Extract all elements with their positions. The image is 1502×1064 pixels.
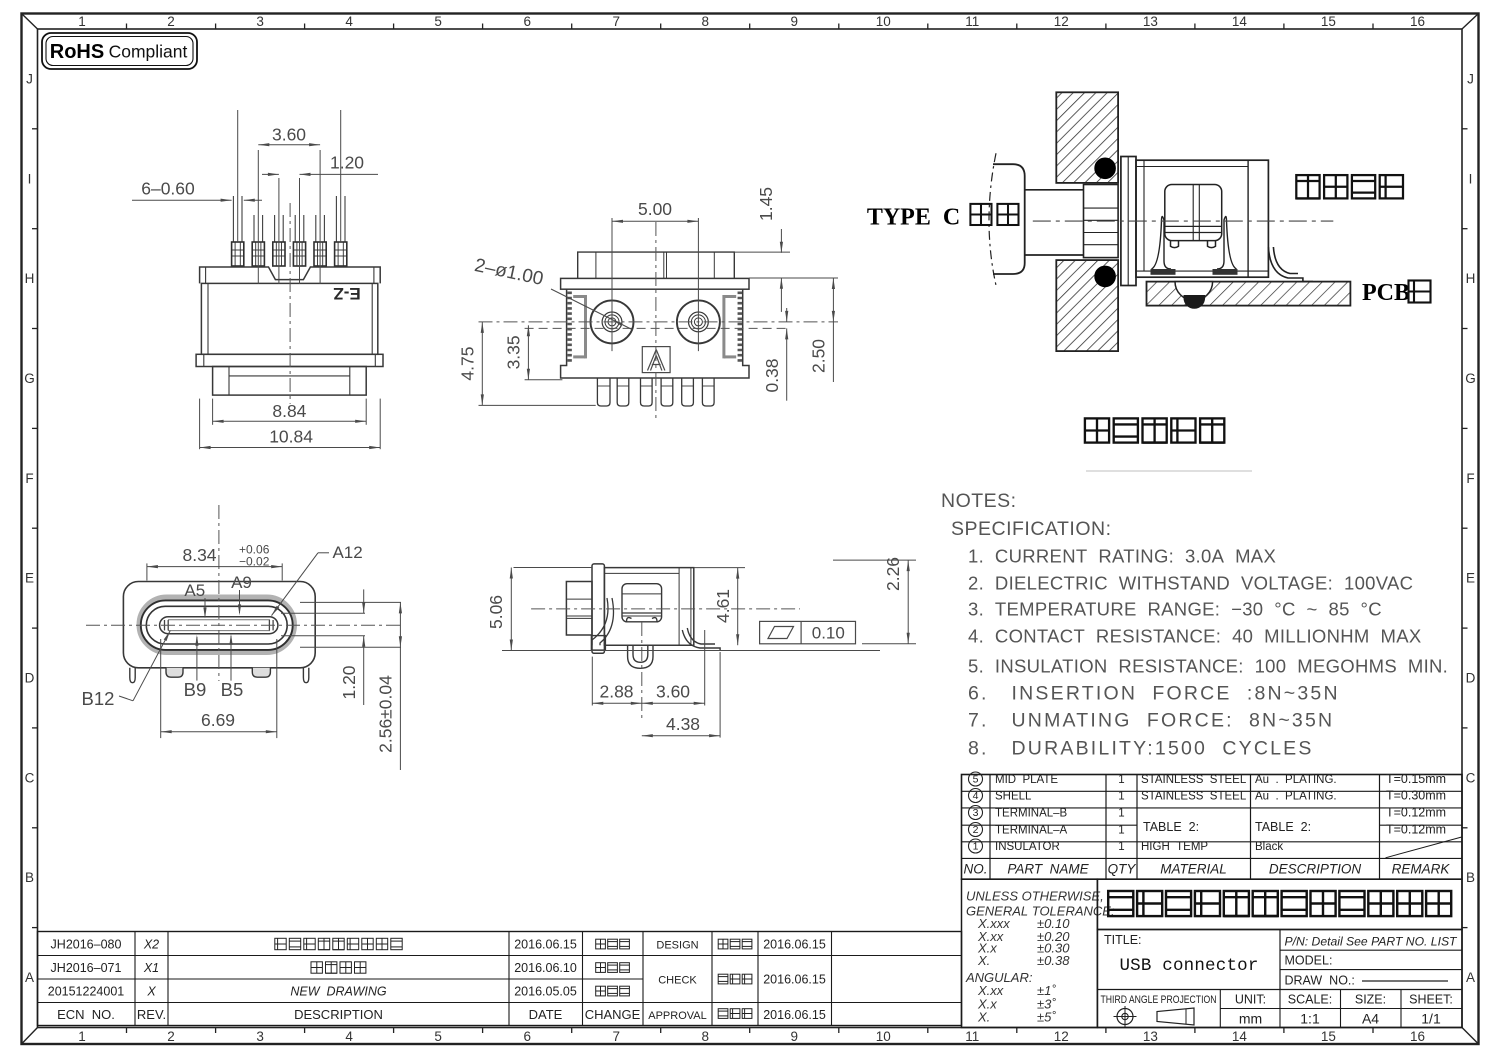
svg-text:PCB: PCB [1362, 280, 1410, 306]
svg-text:T=0.30mm: T=0.30mm [1386, 789, 1446, 803]
svg-text:5.06: 5.06 [486, 595, 506, 629]
svg-text:B: B [1466, 870, 1475, 885]
svg-text:5.00: 5.00 [638, 199, 672, 219]
svg-text:1: 1 [1118, 791, 1124, 803]
svg-text:UNLESS OTHERWISE,: UNLESS OTHERWISE, [966, 889, 1104, 904]
svg-text:A12: A12 [332, 543, 362, 562]
svg-text:A9: A9 [231, 573, 252, 592]
svg-text:5: 5 [434, 1029, 442, 1044]
svg-text:mm: mm [1239, 1011, 1262, 1027]
svg-text:B5: B5 [221, 679, 244, 700]
svg-text:−0.02: −0.02 [239, 555, 270, 569]
svg-text:X2: X2 [143, 938, 159, 952]
svg-text:3.35: 3.35 [504, 335, 524, 369]
svg-text:JH2016–080: JH2016–080 [51, 938, 122, 952]
svg-text:A5: A5 [184, 581, 205, 600]
svg-text:4. CONTACT RESISTANCE: 40: 4. CONTACT RESISTANCE: 40 MILLIONHM MAX [968, 626, 1422, 647]
svg-text:2016.05.05: 2016.05.05 [514, 985, 577, 999]
svg-text:I: I [28, 171, 32, 186]
svg-text:QTY: QTY [1108, 862, 1137, 877]
svg-text:1: 1 [78, 14, 86, 29]
svg-text:9: 9 [791, 1029, 799, 1044]
svg-text:6: 6 [523, 14, 531, 29]
svg-text:2.50: 2.50 [809, 339, 829, 373]
svg-text:A4: A4 [1362, 1011, 1379, 1027]
svg-text:E-Z: E-Z [333, 284, 360, 303]
svg-text:0.38: 0.38 [762, 358, 782, 392]
svg-text:STAINLESS STEEL: STAINLESS STEEL [1141, 774, 1247, 786]
svg-text:1: 1 [973, 841, 979, 853]
svg-text:1: 1 [1118, 825, 1124, 837]
svg-text:14: 14 [1232, 14, 1248, 29]
svg-text:T=0.12mm: T=0.12mm [1386, 806, 1446, 820]
svg-text:SIZE:: SIZE: [1355, 993, 1386, 1007]
svg-text:6.69: 6.69 [201, 710, 235, 730]
svg-text:Au . PLATING.: Au . PLATING. [1255, 791, 1337, 803]
svg-text:2016.06.15: 2016.06.15 [514, 938, 577, 952]
svg-text:6. INSERTION FORCE :8N~35N: 6. INSERTION FORCE :8N~35N [968, 683, 1340, 705]
svg-text:G: G [24, 371, 35, 386]
svg-text:3: 3 [973, 807, 979, 819]
svg-text:PART NAME: PART NAME [1007, 862, 1089, 877]
svg-text:A: A [25, 970, 34, 985]
svg-text:1.20: 1.20 [339, 665, 359, 699]
svg-text:TERMINAL–A: TERMINAL–A [995, 825, 1068, 837]
svg-text:±5˚: ±5˚ [1037, 1010, 1056, 1025]
svg-text:TERMINAL–B: TERMINAL–B [995, 808, 1068, 820]
svg-text:B: B [25, 870, 34, 885]
svg-text:10: 10 [876, 1029, 891, 1044]
svg-text:X1: X1 [143, 961, 159, 975]
svg-text:G: G [1465, 371, 1476, 386]
svg-text:HIGH TEMP: HIGH TEMP [1141, 841, 1208, 853]
svg-text:4.75: 4.75 [458, 347, 478, 381]
svg-text:13: 13 [1143, 1029, 1158, 1044]
svg-text:B12: B12 [82, 688, 115, 709]
svg-text:APPROVAL: APPROVAL [648, 1010, 707, 1022]
svg-text:1.20: 1.20 [330, 153, 364, 173]
svg-text:1:1: 1:1 [1300, 1011, 1320, 1027]
svg-text:12: 12 [1054, 14, 1069, 29]
svg-text:11: 11 [965, 1029, 979, 1044]
svg-text:T=0.15mm: T=0.15mm [1386, 772, 1446, 786]
svg-text:ECN NO.: ECN NO. [57, 1007, 115, 1022]
svg-text:8.34: 8.34 [182, 545, 216, 565]
svg-text:T=0.12mm: T=0.12mm [1386, 823, 1446, 837]
svg-text:2: 2 [167, 1029, 175, 1044]
svg-text:SPECIFICATION:: SPECIFICATION: [951, 518, 1112, 540]
svg-text:1: 1 [1118, 774, 1124, 786]
svg-text:Compliant: Compliant [109, 42, 188, 62]
svg-text:5: 5 [434, 14, 442, 29]
svg-text:C: C [1466, 770, 1476, 785]
svg-text:DESCRIPTION: DESCRIPTION [1269, 862, 1362, 877]
svg-text:P/N: Detail See PART NO. LIST: P/N: Detail See PART NO. LIST [1285, 935, 1458, 949]
svg-text:4: 4 [973, 790, 979, 802]
svg-text:8.84: 8.84 [272, 401, 306, 421]
svg-text:4: 4 [345, 1029, 353, 1044]
svg-text:1. CURRENT RATING: 3.0A MA: 1. CURRENT RATING: 3.0A MAX [968, 546, 1276, 567]
svg-text:SCALE:: SCALE: [1288, 993, 1332, 1007]
svg-text:UNIT:: UNIT: [1235, 993, 1266, 1007]
svg-text:10.84: 10.84 [269, 426, 313, 446]
svg-text:5: 5 [973, 774, 979, 786]
svg-text:20151224001: 20151224001 [48, 985, 125, 999]
svg-text:TITLE:: TITLE: [1104, 933, 1142, 947]
svg-text:E: E [25, 571, 34, 586]
svg-text:J: J [1467, 71, 1474, 86]
svg-text:SHELL: SHELL [995, 791, 1032, 803]
svg-text:DATE: DATE [529, 1007, 563, 1022]
svg-text:2.26: 2.26 [883, 557, 903, 591]
svg-text:16: 16 [1410, 1029, 1425, 1044]
svg-text:2016.06.15: 2016.06.15 [763, 973, 826, 987]
svg-text:D: D [25, 671, 35, 686]
svg-text:THIRD ANGLE PROJECTION: THIRD ANGLE PROJECTION [1101, 994, 1217, 1006]
svg-text:8: 8 [701, 14, 709, 29]
svg-text:INSULATOR: INSULATOR [995, 841, 1060, 853]
svg-text:7. UNMATING FORCE: 8N~35N: 7. UNMATING FORCE: 8N~35N [968, 710, 1334, 732]
svg-text:MATERIAL: MATERIAL [1160, 862, 1227, 877]
svg-text:7: 7 [612, 14, 620, 29]
svg-text:4: 4 [345, 14, 353, 29]
svg-text:0.10: 0.10 [812, 624, 845, 643]
svg-text:12: 12 [1054, 1029, 1069, 1044]
svg-text:D: D [1466, 671, 1476, 686]
svg-text:B9: B9 [184, 679, 207, 700]
svg-text:2. DIELECTRIC WITHSTAND VOL: 2. DIELECTRIC WITHSTAND VOLTAGE: 100VAC [968, 573, 1413, 594]
svg-text:NEW DRAWING: NEW DRAWING [290, 985, 387, 999]
svg-text:CHANGE: CHANGE [585, 1007, 641, 1022]
svg-text:Black: Black [1255, 841, 1283, 853]
svg-text:C: C [25, 770, 35, 785]
svg-text:1.45: 1.45 [756, 187, 776, 221]
svg-text:H: H [1466, 271, 1476, 286]
svg-text:REMARK: REMARK [1392, 862, 1451, 877]
svg-text:7: 7 [612, 1029, 620, 1044]
svg-text:3. TEMPERATURE RANGE: −30: 3. TEMPERATURE RANGE: −30 °C ~ 85 °C [968, 599, 1382, 620]
svg-text:X.: X. [977, 953, 990, 968]
svg-text:13: 13 [1143, 14, 1158, 29]
svg-text:CHECK: CHECK [658, 975, 697, 987]
svg-text:5. INSULATION RESISTANCE: 1: 5. INSULATION RESISTANCE: 100 MEGOHMS MI… [968, 656, 1448, 677]
svg-text:1: 1 [1118, 808, 1124, 820]
svg-text:11: 11 [965, 14, 979, 29]
svg-text:E: E [1466, 571, 1475, 586]
svg-text:JH2016–071: JH2016–071 [51, 961, 122, 975]
svg-text:4.38: 4.38 [666, 714, 700, 734]
svg-text:TABLE 2:: TABLE 2: [1255, 820, 1311, 834]
svg-text:I: I [1469, 171, 1473, 186]
svg-text:DESCRIPTION: DESCRIPTION [294, 1007, 383, 1022]
svg-text:8: 8 [701, 1029, 709, 1044]
svg-text:NOTES:: NOTES: [941, 490, 1017, 512]
svg-text:14: 14 [1232, 1029, 1248, 1044]
svg-text:X.: X. [977, 1010, 990, 1025]
svg-text:Au . PLATING.: Au . PLATING. [1255, 774, 1337, 786]
svg-text:2.56±0.04: 2.56±0.04 [376, 675, 396, 753]
svg-text:1/1: 1/1 [1421, 1011, 1441, 1027]
svg-text:A: A [1466, 970, 1475, 985]
svg-text:1: 1 [1118, 841, 1124, 853]
svg-text:RoHS: RoHS [50, 41, 104, 63]
svg-text:2016.06.15: 2016.06.15 [763, 1008, 826, 1022]
svg-text:2.88: 2.88 [599, 682, 633, 702]
svg-text:2016.06.10: 2016.06.10 [514, 961, 577, 975]
svg-text:DESIGN: DESIGN [656, 940, 698, 952]
svg-text:STAINLESS STEEL: STAINLESS STEEL [1141, 791, 1247, 803]
svg-text:2: 2 [167, 14, 175, 29]
svg-text:2016.06.15: 2016.06.15 [763, 938, 826, 952]
svg-text:6: 6 [523, 1029, 531, 1044]
svg-text:±0.38: ±0.38 [1037, 953, 1070, 968]
svg-text:H: H [25, 271, 35, 286]
svg-text:DRAW NO.:: DRAW NO.: [1285, 974, 1355, 988]
svg-text:10: 10 [876, 14, 891, 29]
svg-text:3.60: 3.60 [656, 682, 690, 702]
svg-text:15: 15 [1321, 1029, 1336, 1044]
svg-text:SHEET:: SHEET: [1409, 993, 1453, 1007]
svg-text:4.61: 4.61 [713, 589, 733, 623]
svg-text:9: 9 [791, 14, 799, 29]
svg-text:TYPE C: TYPE C [867, 205, 960, 231]
svg-text:8. DURABILITY:1500 CYCLES: 8. DURABILITY:1500 CYCLES [968, 738, 1314, 760]
svg-text:3.60: 3.60 [272, 125, 306, 145]
svg-text:F: F [1466, 471, 1474, 486]
svg-text:J: J [26, 71, 33, 86]
svg-text:1: 1 [78, 1029, 86, 1044]
svg-text:X: X [146, 985, 156, 999]
svg-text:USB connector: USB connector [1119, 956, 1258, 976]
svg-text:3: 3 [256, 1029, 264, 1044]
svg-text:TABLE 2:: TABLE 2: [1143, 820, 1199, 834]
svg-text:6–0.60: 6–0.60 [141, 179, 195, 199]
svg-text:16: 16 [1410, 14, 1425, 29]
svg-text:3: 3 [256, 14, 264, 29]
svg-text:MID PLATE: MID PLATE [995, 774, 1058, 786]
svg-text:15: 15 [1321, 14, 1336, 29]
svg-text:F: F [25, 471, 33, 486]
svg-text:2: 2 [973, 824, 979, 836]
svg-text:MODEL:: MODEL: [1285, 954, 1333, 968]
svg-text:REV.: REV. [137, 1007, 166, 1022]
svg-text:NO.: NO. [963, 862, 987, 877]
